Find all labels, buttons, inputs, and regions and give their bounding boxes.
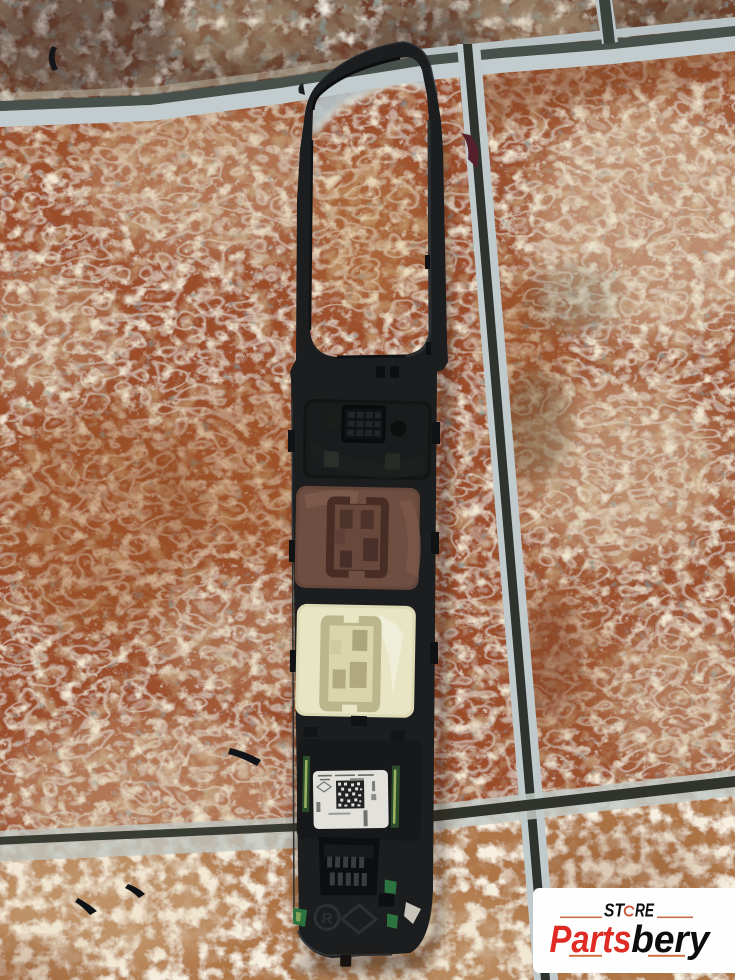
svg-text:bery: bery [631,917,711,960]
svg-text:Parts: Parts [550,918,632,961]
svg-text:R: R [321,910,332,927]
